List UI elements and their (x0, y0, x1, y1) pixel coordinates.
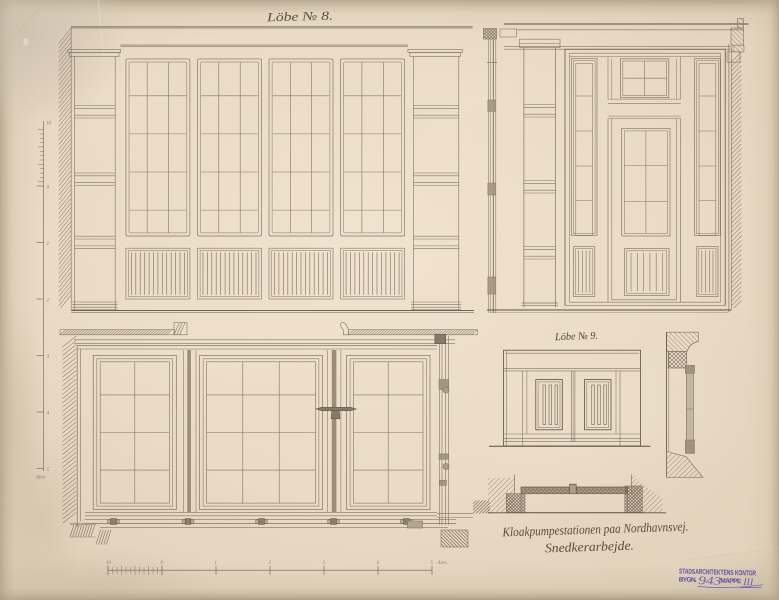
svg-text:1: 1 (47, 242, 50, 247)
svg-text:MAPPE: MAPPE (720, 578, 742, 586)
svg-text:943: 943 (698, 575, 722, 588)
svg-text:Alen: Alen (35, 476, 46, 481)
svg-text:10: 10 (46, 122, 52, 127)
svg-text:Alen.: Alen. (437, 561, 448, 566)
svg-text:Löbe № 9.: Löbe № 9. (554, 331, 598, 344)
svg-text:Löbe № 8.: Löbe № 8. (266, 9, 334, 25)
svg-text:1: 1 (215, 561, 217, 566)
svg-text:Snedkerarbejde.: Snedkerarbejde. (545, 538, 634, 556)
svg-text:10: 10 (106, 561, 111, 566)
svg-text:BYGN.: BYGN. (679, 576, 697, 584)
